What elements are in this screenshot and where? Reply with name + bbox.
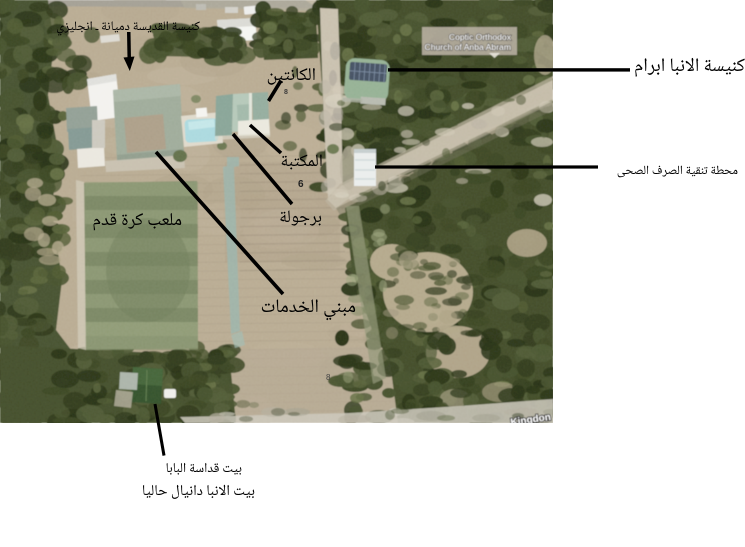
svg-text:8: 8: [284, 89, 288, 96]
svg-text:6: 6: [298, 179, 304, 190]
svg-text:8: 8: [326, 373, 331, 382]
